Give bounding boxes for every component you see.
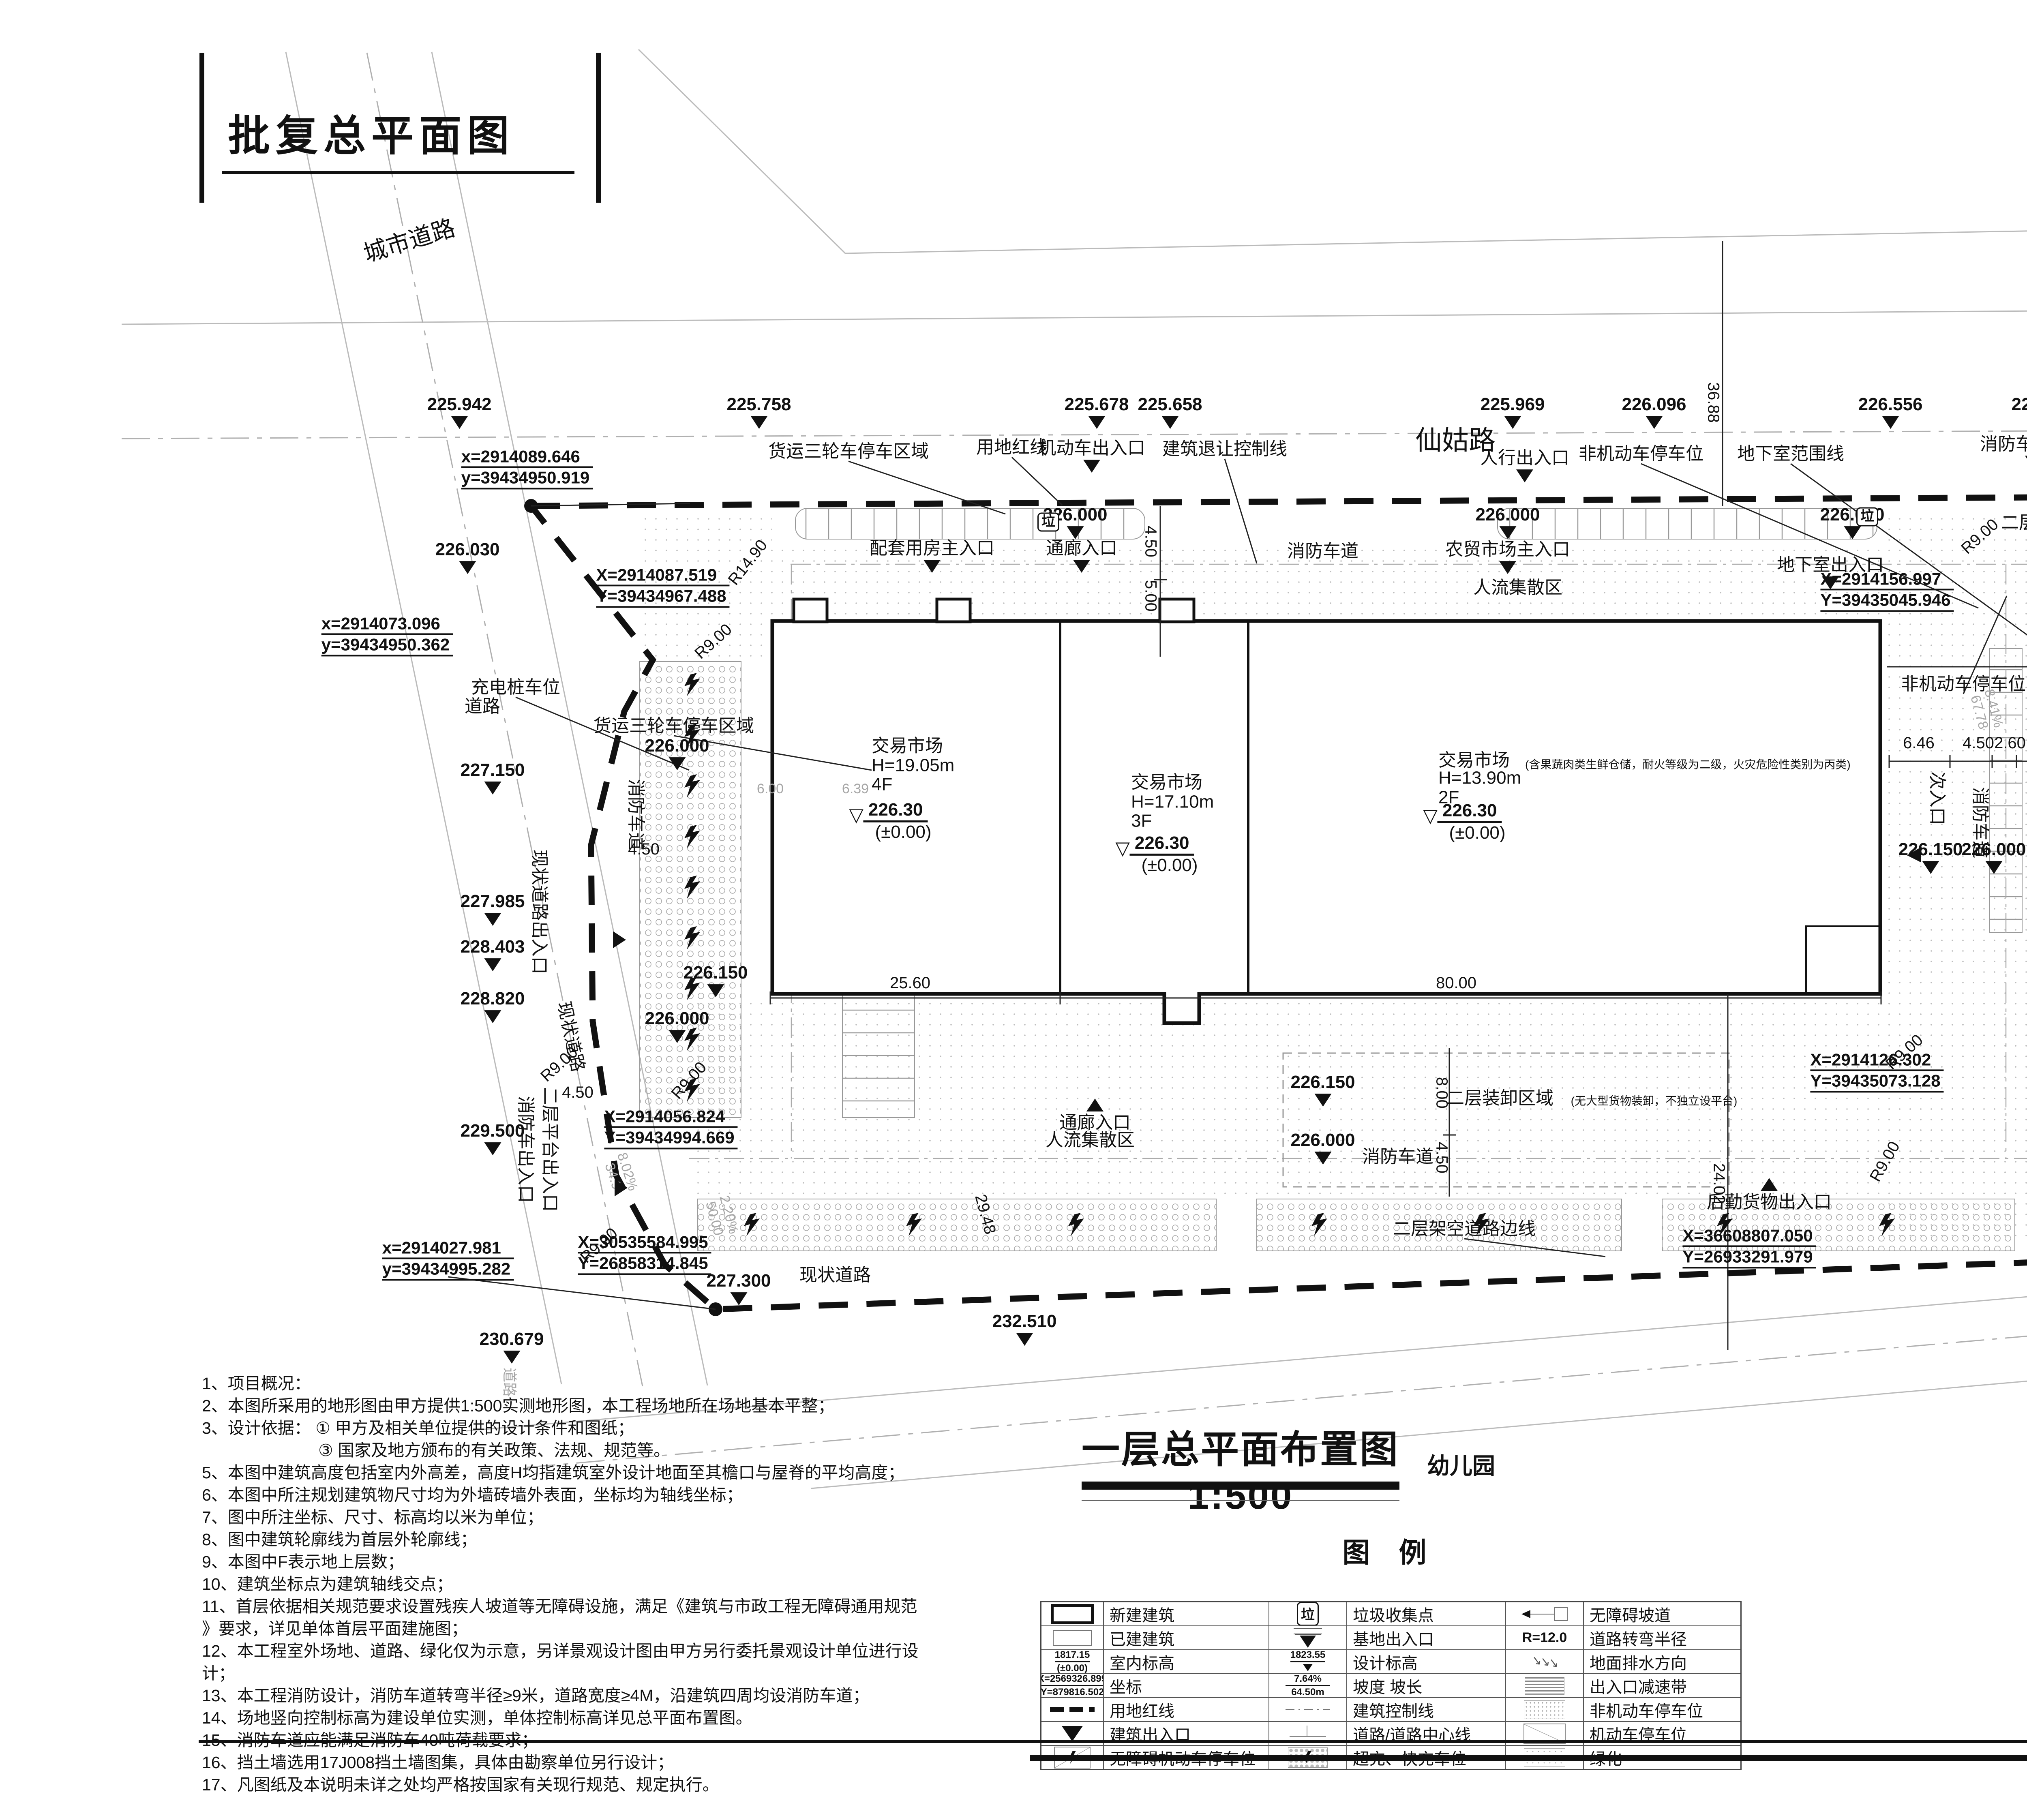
note-line: 11、首层依据相关规范要求设置残疾人坡道等无障碍设施，满足《建筑与市政工程无障碍… — [202, 1595, 915, 1618]
dimension-label: 25.60 — [890, 974, 930, 992]
legend-symbol-existing-building — [1041, 1626, 1104, 1649]
legend-row: 已建建筑基地出入口R=12.0道路转弯半径 — [1041, 1626, 1740, 1650]
legend-symbol-control-line — [1269, 1698, 1347, 1721]
entrance-label: 通廊入口 — [1046, 539, 1117, 573]
level-marker: ▽226.30(±0.00) — [849, 800, 931, 841]
legend-symbol-speed-bump — [1506, 1674, 1584, 1697]
legend-label: 出入口减速带 — [1590, 1674, 1687, 1697]
dimension-label: 4.50 — [628, 841, 660, 858]
plan-label: 6.39 — [842, 782, 869, 797]
dimension-label: 6.46 — [1903, 734, 1935, 752]
legend-symbol-indoor-elevation: 1817.15(±0.00) — [1041, 1650, 1104, 1673]
legend-label: 基地出入口 — [1353, 1626, 1434, 1649]
spot-elevation: 226.758 — [2011, 395, 2027, 429]
title-underline — [222, 171, 574, 174]
plan-label: 现状道路 — [799, 1265, 871, 1285]
callout-label: 二层架空道路边线 — [1393, 1219, 1536, 1239]
spot-elevation: 230.679 — [479, 1330, 544, 1364]
legend-label: 坐标 — [1110, 1674, 1142, 1697]
legend-label: 道路转弯半径 — [1590, 1626, 1687, 1649]
dimension-label: 8.00 — [1433, 1077, 1450, 1109]
legend-symbol-slope: 7.64%64.50m — [1269, 1674, 1347, 1697]
legend-symbol-trash-point: 垃 — [1269, 1602, 1347, 1625]
spot-elevation: 226.556 — [1858, 395, 1922, 429]
note-line: 9、本图中F表示地上层数； — [202, 1551, 915, 1573]
legend-label-cell: 出入口减速带 — [1584, 1674, 1740, 1697]
legend-label: 室内标高 — [1110, 1650, 1174, 1673]
coordinate-callout: X=30535584.995Y=26858314.845 — [578, 1232, 711, 1275]
callout-label: 地下室范围线 — [1737, 444, 1844, 464]
level-marker: ▽226.30(±0.00) — [1423, 801, 1505, 842]
note-line: 计； — [202, 1662, 915, 1685]
coordinate-callout: X=2914087.519Y=39434967.488 — [596, 565, 729, 608]
entrance-label: 配套用房主入口 — [870, 539, 994, 573]
entrance-label: 农贸市场主入口 — [1445, 540, 1570, 574]
legend-label: 设计标高 — [1353, 1650, 1418, 1673]
legend-label-cell: 道路转弯半径 — [1584, 1626, 1740, 1649]
dimension-label: 4.50 — [1963, 734, 1994, 752]
plan-label: 消防车道 — [1970, 787, 1990, 859]
spot-elevation: 225.658 — [1138, 395, 1202, 429]
spot-elevation: 226.150 — [1290, 1073, 1355, 1107]
spot-elevation: 227.300 — [706, 1271, 771, 1305]
dimension-label: 4.50 — [562, 1084, 594, 1101]
note-line: 6、本图中所注规划建筑物尺寸均为外墙砖墙外表面，坐标均为轴线坐标； — [202, 1484, 915, 1506]
note-line: 》要求，详见单体首层平面建施图； — [202, 1618, 915, 1640]
trash-collection-icon: 垃 — [1856, 505, 1878, 527]
callout-label: 货运三轮车停车区域 — [594, 716, 754, 736]
coordinate-callout: X=2914056.824Y=39434994.669 — [604, 1107, 737, 1149]
legend-label-cell: 非机动车停车位 — [1584, 1698, 1740, 1721]
spot-elevation: 226.000 — [1475, 505, 1540, 539]
sheet-bottom-line-2 — [1030, 1755, 2027, 1761]
drawing-title-underline-thin — [1082, 1500, 1399, 1501]
callout-label: 货运三轮车停车区域 — [768, 442, 929, 461]
legend-symbol-site-entrance — [1269, 1626, 1347, 1649]
plan-label: (无大型货物装卸，不独立设平台) — [1571, 1095, 1738, 1107]
spot-elevation: 225.758 — [726, 395, 791, 429]
spot-elevation: 227.150 — [460, 760, 525, 794]
coordinate-callout: X=2914126.302Y=39435073.128 — [1810, 1050, 1943, 1092]
callout-label: 充电桩车位 — [471, 678, 560, 697]
coordinate-callout: x=2914089.646y=39434950.919 — [461, 447, 593, 489]
dimension-label: 80.00 — [1436, 974, 1476, 992]
plan-label: 人流集散区 — [1046, 1131, 1135, 1150]
plan-label: 人流集散区 — [1473, 578, 1562, 597]
trash-collection-icon: 垃 — [1037, 511, 1059, 532]
entrance-arrow-icon — [615, 1179, 628, 1196]
spot-elevation: 225.969 — [1480, 395, 1545, 429]
market-building — [772, 599, 1880, 1023]
plan-label: 消防车道 — [1287, 542, 1358, 561]
legend-symbol-design-elevation: 1823.55 — [1269, 1650, 1347, 1673]
note-line: 2、本图所采用的地形图由甲方提供1:500实测地形图，本工程场地所在场地基本平整… — [202, 1395, 915, 1417]
plan-label: 交易市场 H=19.05m 4F — [872, 737, 954, 794]
legend-label-cell: 垃圾收集点 — [1347, 1602, 1506, 1625]
spot-elevation: 227.985 — [460, 892, 525, 926]
dimension-label: 2.60 — [1994, 734, 2026, 752]
plan-label: 二层装卸区域 — [1446, 1089, 1553, 1108]
spot-elevation: 228.820 — [460, 989, 525, 1023]
callout-label: 非机动车停车位 — [1901, 674, 2026, 694]
legend-row: 1817.15(±0.00)室内标高1823.55设计标高↘↘↘地面排水方向 — [1041, 1650, 1740, 1674]
note-line: ③ 国家及地方颁布的有关政策、法规、规范等。 — [202, 1439, 915, 1462]
note-line: 8、图中建筑轮廓线为首层外轮廓线； — [202, 1529, 915, 1551]
legend-label-cell: 无障碍坡道 — [1584, 1602, 1740, 1625]
note-line: 14、场地竖向控制标高为建设单位实测，单体控制标高详见总平面布置图。 — [202, 1707, 915, 1729]
note-line: 7、图中所注坐标、尺寸、标高均以米为单位； — [202, 1506, 915, 1529]
spot-elevation: 225.942 — [427, 395, 491, 429]
plan-label: 二层平台出入口 — [540, 1087, 559, 1212]
spot-elevation: 226.000 — [645, 1009, 709, 1043]
legend-label-cell: 设计标高 — [1347, 1650, 1506, 1673]
title-bar-right — [596, 53, 601, 203]
general-notes: 1、项目概况：2、本图所采用的地形图由甲方提供1:500实测地形图，本工程场地所… — [202, 1372, 915, 1796]
legend-label-cell: 坡度 坡长 — [1347, 1674, 1506, 1697]
callout-label: 非机动车停车位 — [1579, 444, 1703, 464]
legend-label-cell: 建筑控制线 — [1347, 1698, 1506, 1721]
drawing-title: 一层总平面布置图 1:500 — [1082, 1419, 1399, 1518]
spot-elevation: 226.096 — [1622, 395, 1686, 429]
note-line: 12、本工程室外场地、道路、绿化仅为示意，另详景观设计图由甲方另行委托景观设计单… — [202, 1640, 915, 1662]
legend-row: 新建建筑垃垃圾收集点无障碍坡道 — [1041, 1602, 1740, 1626]
plan-label: 现状道路出入口 — [529, 850, 549, 974]
plan-label: 消防车道 — [1362, 1147, 1433, 1167]
legend-label-cell: 地面排水方向 — [1584, 1650, 1740, 1673]
entrance-label: 通廊入口 — [1059, 1098, 1131, 1133]
legend-symbol-new-building — [1041, 1602, 1104, 1625]
kindergarten-label: 幼儿园 — [1427, 1448, 1495, 1481]
coordinate-callout: x=2914027.981y=39434995.282 — [382, 1238, 514, 1280]
legend-label-cell: 新建建筑 — [1104, 1602, 1269, 1625]
legend-symbol-coordinate: X=2569326.899Y=879816.502 — [1041, 1674, 1104, 1697]
title-bar-left — [199, 53, 204, 203]
entrance-label: 二层平台出入口 — [2001, 513, 2027, 547]
spot-elevation: 226.000 — [1290, 1131, 1355, 1165]
dimension-label: 24.02 — [1710, 1163, 1727, 1204]
legend-label-cell: 室内标高 — [1104, 1650, 1269, 1673]
spot-elevation: 225.678 — [1064, 395, 1129, 429]
legend-label: 非机动车停车位 — [1590, 1698, 1703, 1721]
callout-label: 用地红线 — [976, 438, 1048, 457]
callout-label: 建筑退让控制线 — [1162, 439, 1287, 459]
legend-label-cell: 基地出入口 — [1347, 1626, 1506, 1649]
legend-row: X=2569326.899Y=879816.502坐标7.64%64.50m坡度… — [1041, 1674, 1740, 1698]
note-line: 10、建筑坐标点为建筑轴线交点； — [202, 1573, 915, 1595]
note-line: 17、凡图纸及本说明未详之处均严格按国家有关现行规范、规定执行。 — [202, 1774, 915, 1796]
spot-elevation: 226.030 — [435, 540, 499, 574]
note-line: 3、设计依据： ① 甲方及相关单位提供的设计条件和图纸； — [202, 1417, 915, 1439]
level-marker: ▽226.30(±0.00) — [1115, 833, 1198, 875]
legend-symbol-ramp — [1506, 1602, 1584, 1625]
spot-elevation: 229.500 — [460, 1121, 525, 1155]
note-line: 5、本图中建筑高度包括室内外高差，高度H均指建筑室外设计地面至其檐口与屋脊的平均… — [202, 1462, 915, 1484]
legend-symbol-drainage: ↘↘↘ — [1506, 1650, 1584, 1673]
legend-label: 已建建筑 — [1110, 1626, 1174, 1649]
plan-label: 交易市场 — [1438, 751, 1510, 770]
plan-label: 6.00 — [757, 782, 784, 797]
title-block: 批复总平面图 — [199, 53, 601, 203]
legend-label: 用地红线 — [1110, 1698, 1174, 1721]
dimension-label: 36.88 — [1704, 382, 1722, 423]
note-line: 13、本工程消防设计，消防车道转弯半径≥9米，道路宽度≥4M，沿建筑四周均设消防… — [202, 1685, 915, 1707]
plan-label: 仙姑路 — [1415, 426, 1496, 455]
spot-elevation: 228.403 — [460, 937, 525, 971]
spot-elevation: 226.000 — [645, 736, 709, 770]
legend-label: 地面排水方向 — [1590, 1650, 1687, 1673]
legend-title: 图 例 — [1040, 1530, 1739, 1570]
plan-label: 次入口 — [1927, 772, 1947, 825]
coordinate-callout: X=36608807.050Y=26933291.979 — [1682, 1226, 1816, 1268]
legend-label: 新建建筑 — [1110, 1602, 1174, 1625]
legend-row: 用地红线建筑控制线非机动车停车位 — [1041, 1698, 1740, 1722]
coordinate-callout: X=2914156.997Y=39435045.946 — [1820, 569, 1954, 612]
legend-label-cell: 已建建筑 — [1104, 1626, 1269, 1649]
plan-label: 道路 — [465, 697, 500, 716]
plan-label: (含果蔬肉类生鲜仓储，耐火等级为二级，火灾危险性类别为丙类) — [1525, 758, 1851, 771]
legend-label-cell: 用地红线 — [1104, 1698, 1269, 1721]
note-line: 16、挡土墙选用17J008挡土墙图集，具体由勘察单位另行设计； — [202, 1751, 915, 1774]
site-plan-sheet: 批复总平面图 225.942225.758225.678225.658225.9… — [0, 0, 2027, 1820]
dimension-label: 5.00 — [1142, 580, 1159, 612]
plan-label: 消防车出入口 — [516, 1096, 535, 1203]
entrance-label: 机动车出入口 — [1038, 439, 1145, 473]
plan-label: 交易市场 H=17.10m 3F — [1131, 773, 1214, 831]
legend-label-cell: 坐标 — [1104, 1674, 1269, 1697]
legend-symbol-radius: R=12.0 — [1506, 1626, 1584, 1649]
legend-symbol-nonmotor-parking — [1506, 1698, 1584, 1721]
legend-label: 垃圾收集点 — [1353, 1602, 1434, 1625]
dimension-label: 4.50 — [1433, 1142, 1450, 1173]
drawing-title-underline — [1082, 1482, 1399, 1490]
sheet-title: 批复总平面图 — [228, 101, 515, 163]
entrance-label: 消防车出入口 — [1980, 435, 2027, 469]
plan-label: 消防车道 — [626, 779, 645, 850]
note-line: 1、项目概况： — [202, 1372, 915, 1395]
coordinate-callout: x=2914073.096y=39434950.362 — [321, 614, 453, 656]
legend-table: 新建建筑垃垃圾收集点无障碍坡道已建建筑基地出入口R=12.0道路转弯半径1817… — [1040, 1601, 1742, 1770]
legend-symbol-red-line — [1041, 1698, 1104, 1721]
spot-elevation: 232.510 — [992, 1312, 1056, 1346]
entrance-arrow-icon — [613, 931, 626, 948]
sheet-bottom-line — [199, 1740, 2027, 1743]
legend-label: 建筑控制线 — [1353, 1698, 1434, 1721]
plan-label: H=13.90m 2F — [1438, 769, 1521, 807]
spot-elevation: 226.150 — [683, 963, 748, 997]
legend-label: 坡度 坡长 — [1353, 1674, 1422, 1697]
dimension-label: 4.50 — [1142, 526, 1159, 557]
legend-label: 无障碍坡道 — [1590, 1602, 1671, 1625]
